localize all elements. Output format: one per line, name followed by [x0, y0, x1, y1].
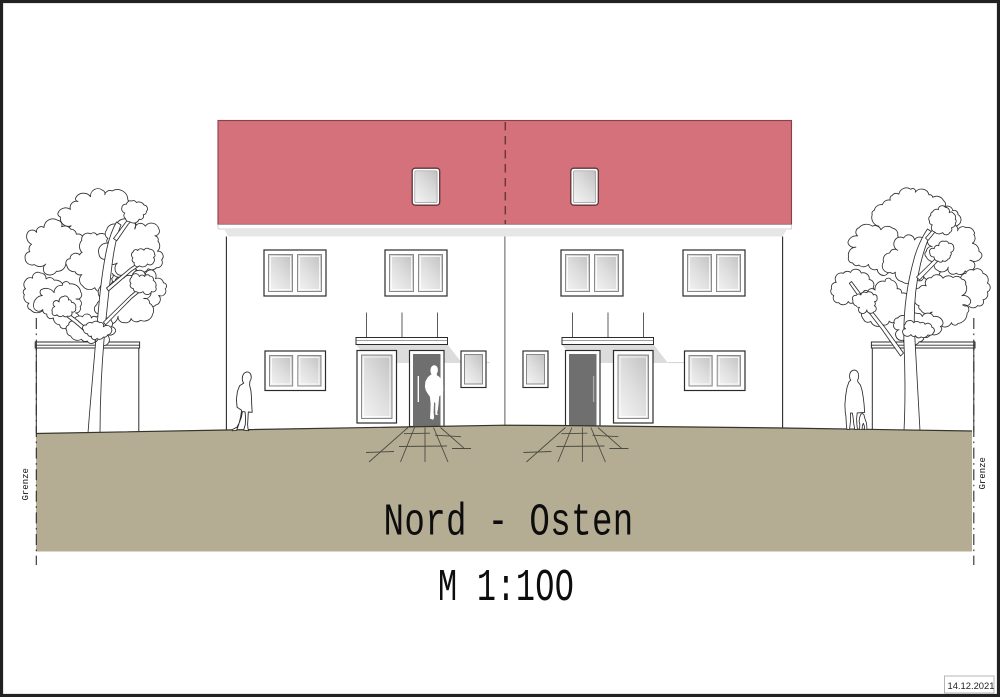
svg-text:Nord - Osten: Nord - Osten: [384, 498, 634, 549]
svg-text:M 1:1OO: M 1:1OO: [438, 562, 574, 614]
svg-text:14.12.2021: 14.12.2021: [948, 680, 995, 691]
svg-text:Grenze: Grenze: [21, 468, 31, 500]
svg-text:Grenze: Grenze: [978, 457, 988, 489]
